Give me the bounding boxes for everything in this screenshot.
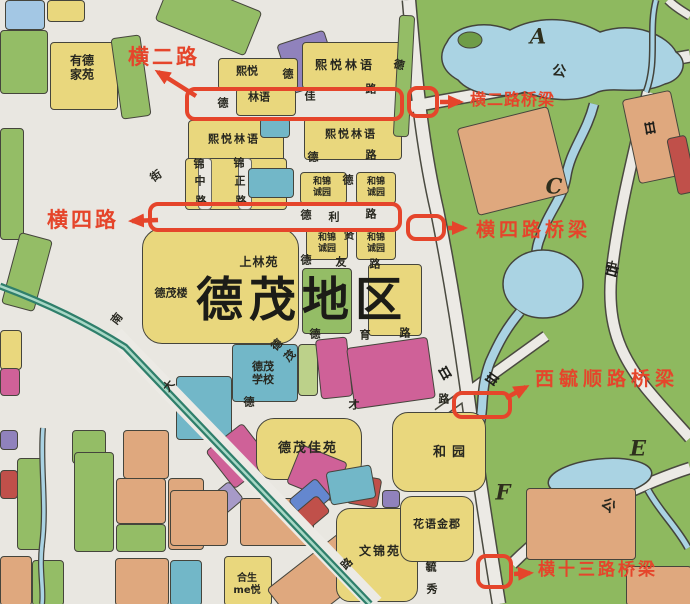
annotation-box-hengsi-bridge [406, 214, 446, 241]
annotation-label-hengsi-road: 横四路 [47, 210, 119, 231]
annotation-label-hengsi-bridge: 横四路桥梁 [476, 221, 591, 240]
annotation-label-xiyushun-bridge: 西毓顺路桥梁 [535, 370, 679, 389]
annotation-box-hengshisan-bridge [476, 554, 513, 589]
annotation-label-henger-road: 横二路 [128, 47, 200, 68]
annotation-box-xiyushun-bridge [452, 391, 512, 419]
annotation-box-henger-bridge [407, 86, 439, 118]
annotation-label-henger-bridge: 横二路桥梁 [470, 92, 555, 108]
annotation-label-hengshisan-bridge: 横十三路桥梁 [538, 562, 658, 579]
annotation-box-hengsi-road [148, 202, 402, 232]
annotation-box-henger-road [185, 87, 404, 121]
planning-map: 德茂地区有德 家苑熙悦林语熙悦林语熙悦林语熙悦林语和锦 诚园和锦 诚园和锦 诚园… [0, 0, 690, 604]
annotation-layer: 横二路 横二路桥梁 横四路 横四路桥梁 西毓顺路桥梁 横十三路桥梁 [0, 0, 690, 604]
